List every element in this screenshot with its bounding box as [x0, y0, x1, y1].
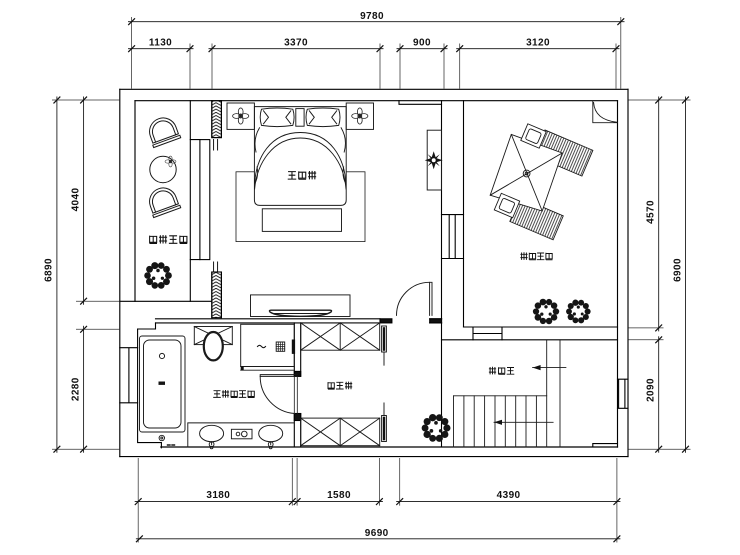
svg-text:3120: 3120	[526, 38, 550, 49]
svg-text:2280: 2280	[70, 377, 81, 401]
svg-text:4570: 4570	[645, 200, 656, 224]
svg-text:6900: 6900	[673, 258, 684, 282]
svg-text:3370: 3370	[284, 38, 308, 49]
svg-text:1580: 1580	[327, 490, 351, 501]
svg-text:9690: 9690	[365, 528, 389, 539]
svg-text:4390: 4390	[497, 490, 521, 501]
svg-text:9780: 9780	[360, 11, 384, 22]
svg-text:3180: 3180	[206, 490, 230, 501]
svg-text:900: 900	[413, 38, 431, 49]
svg-text:2090: 2090	[645, 378, 656, 402]
svg-text:6890: 6890	[44, 258, 55, 282]
svg-text:4040: 4040	[70, 188, 81, 212]
svg-text:1130: 1130	[149, 38, 172, 49]
